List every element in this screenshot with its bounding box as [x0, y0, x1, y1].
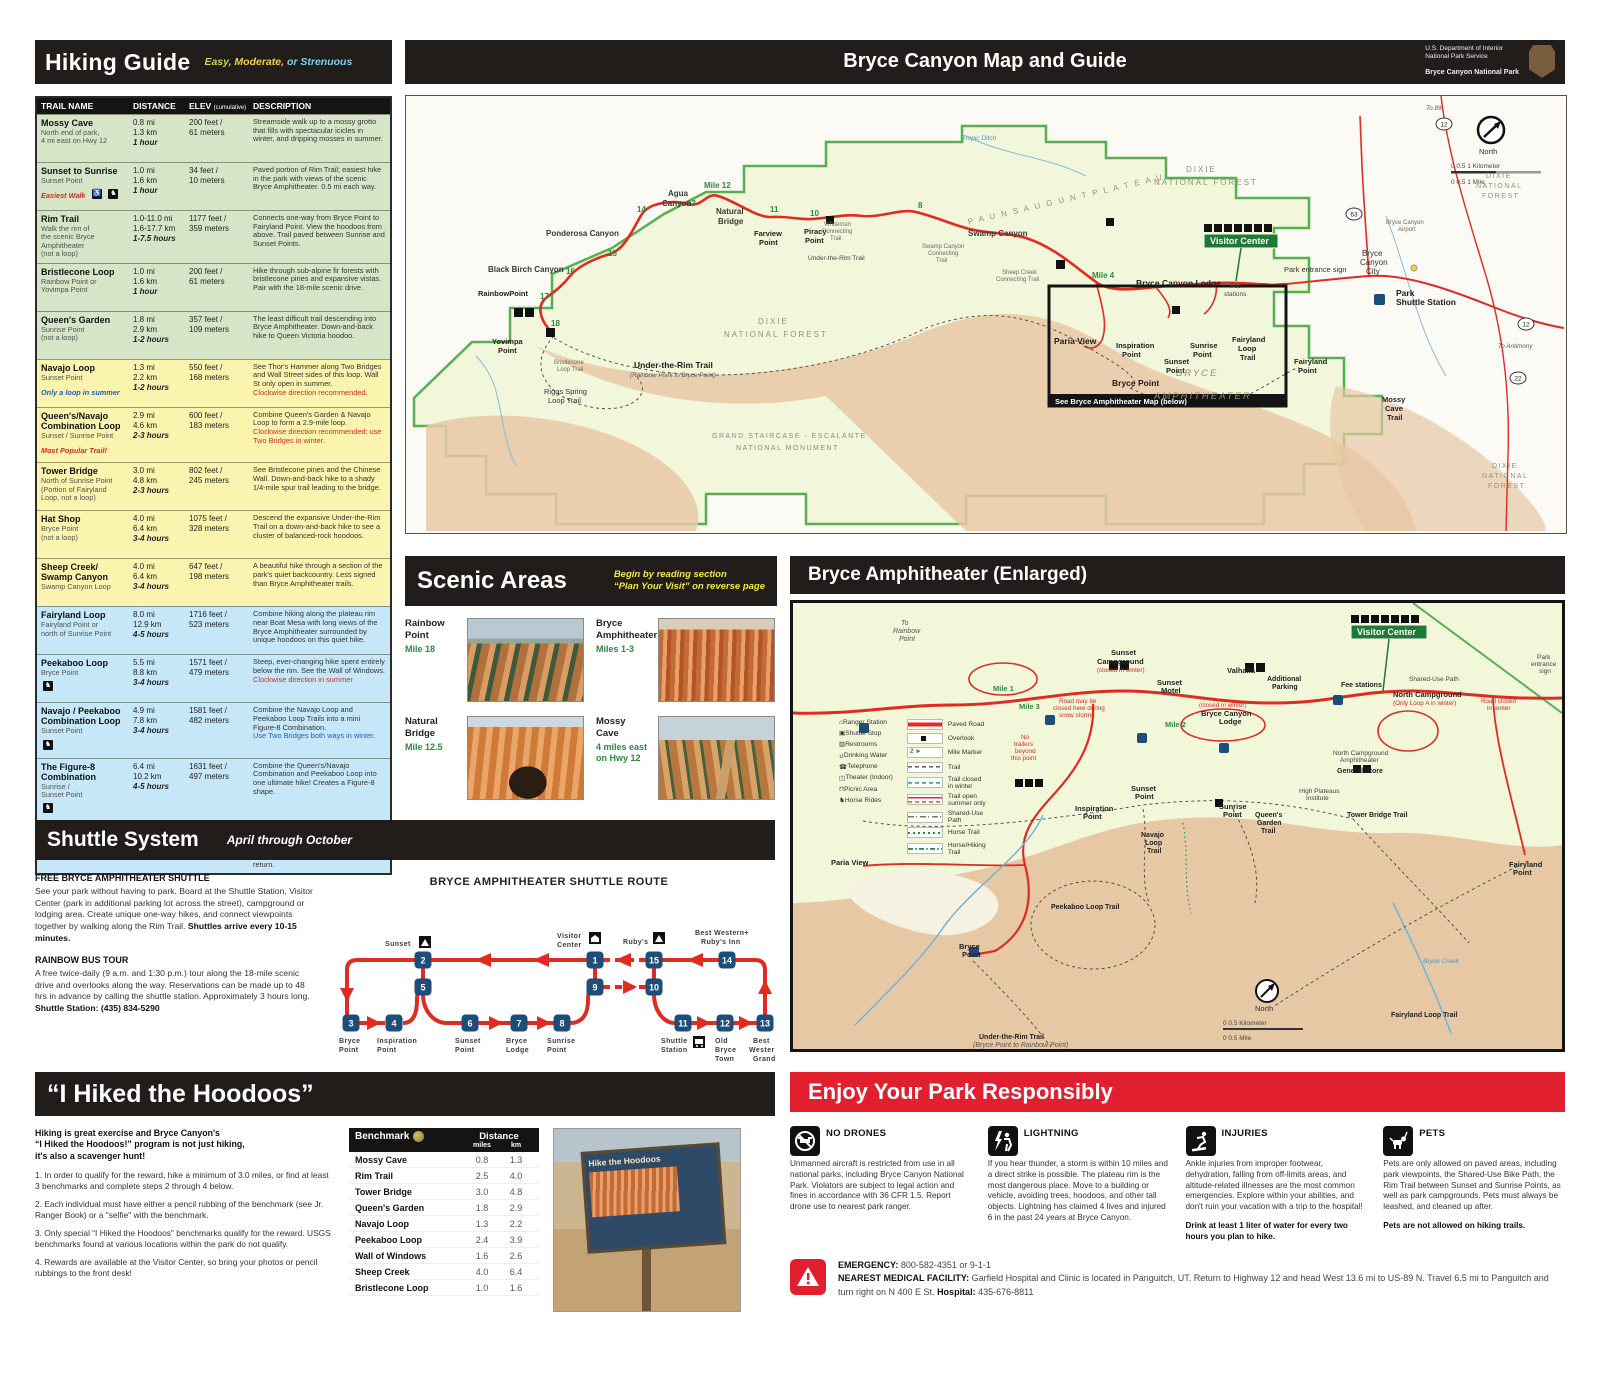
park-map-svg: See Bryce Amphitheater Map (below) Visit… — [406, 96, 1564, 531]
map-label: NATIONAL — [1476, 183, 1523, 190]
map-label: 18 — [551, 319, 560, 328]
svg-text:5: 5 — [420, 983, 425, 993]
map-label: DIXIE — [1186, 165, 1217, 174]
agency-block: U.S. Department of Interior National Par… — [1425, 45, 1519, 77]
svg-text:1: 1 — [592, 956, 597, 966]
trail-elevation: 200 feet /61 meters — [189, 118, 253, 158]
trail-distance: 4.9 mi7.8 km3-4 hours — [133, 706, 189, 754]
map-label: DIXIE — [1486, 173, 1512, 180]
benchmark-row: Rim Trail 2.5 4.0 — [349, 1168, 539, 1184]
svg-text:63: 63 — [1350, 212, 1358, 219]
hoodoos-step: 1. In order to qualify for the reward, h… — [35, 1170, 335, 1192]
benchmark-medallion-icon — [413, 1131, 424, 1142]
map-label: Trail — [1240, 353, 1255, 362]
route-lines — [347, 960, 765, 1023]
amph-label: Parking — [1272, 684, 1298, 691]
amph-label: Trail — [1147, 848, 1161, 855]
benchmark-row: Wall of Windows 1.6 2.6 — [349, 1248, 539, 1264]
trail-distance: 3.0 mi4.8 km2-3 hours — [133, 466, 189, 506]
amphitheater-header: Bryce Amphitheater (Enlarged) — [790, 556, 1565, 594]
shuttle-stop: 10 — [646, 979, 663, 996]
trail-name: Navajo / Peekaboo Combination Loop — [41, 706, 133, 726]
trail-distance: 2.9 mi4.6 km2-3 hours — [133, 411, 189, 459]
amph-label: To — [901, 620, 909, 627]
hoodoos-step: 3. Only special “I Hiked the Hoodoos" be… — [35, 1228, 335, 1250]
route-shield: 12 — [1518, 318, 1534, 330]
hiking-guide-title: Hiking Guide — [45, 49, 190, 76]
scenic-areas-header: Scenic Areas Begin by reading section“Pl… — [405, 556, 777, 606]
amph-label: in winter — [1487, 705, 1510, 712]
legend-line-symbols: Paved Road Overlook 2 ► Mile Marker Trai… — [907, 719, 986, 859]
rainbow-tour-heading: RAINBOW BUS TOUR — [35, 954, 315, 966]
route-shield: 63 — [1346, 208, 1362, 220]
map-label: Connecting Trail — [996, 277, 1039, 283]
stop-label: Station — [661, 1047, 688, 1054]
legend-item: ♞ Horse Rides — [839, 796, 893, 804]
map-label: Airport — [1398, 227, 1416, 233]
legend-line-sample — [907, 827, 943, 838]
hoodoos-text: Hiking is great exercise and Bryce Canyo… — [35, 1128, 335, 1312]
benchmark-row: Peekaboo Loop 2.4 3.9 — [349, 1232, 539, 1248]
map-label: Bristlecone — [554, 360, 584, 366]
amph-label: Queen's — [1255, 812, 1282, 819]
map-label: FOREST — [1482, 193, 1519, 200]
amph-label: Mile 1 — [993, 684, 1014, 693]
legend-item: ▣ Shuttle Stop — [839, 729, 893, 737]
trail-name: Sunset to Sunrise — [41, 166, 133, 176]
hiking-guide-header: Hiking Guide Easy, Moderate, or Strenuou… — [35, 40, 392, 84]
legend-line-sample — [907, 762, 943, 773]
map-label: Fairyland — [1294, 357, 1328, 366]
trail-elevation: 802 feet /245 meters — [189, 466, 253, 506]
table-row: Peekaboo Loop Bryce Point ♞ 5.5 mi8.8 km… — [37, 654, 390, 702]
accessible-icon: ♞ — [43, 740, 53, 750]
item-body: Pets are only allowed on paved areas, in… — [1383, 1159, 1565, 1213]
trail-table: TRAIL NAME DISTANCE ELEV (cumulative) DE… — [35, 96, 392, 875]
table-row: Tower Bridge North of Sunrise Point (Por… — [37, 462, 390, 510]
trail-name: Tower Bridge — [41, 466, 133, 476]
trail-description: Steep, ever-changing hike spent entirely… — [253, 658, 388, 698]
map-guide-title: Bryce Canyon Map and Guide — [405, 50, 1565, 73]
legend-item: Horse/Hiking Trail — [907, 842, 986, 856]
col-trail-name: TRAIL NAME — [41, 101, 133, 111]
trail-location: Sunset Point — [41, 727, 133, 735]
trail-distance: 5.5 mi8.8 km3-4 hours — [133, 658, 189, 698]
sign-text: Hike the Hoodoos — [588, 1150, 713, 1169]
table-row: Sheep Creek/ Swamp Canyon Swamp Canyon L… — [37, 558, 390, 606]
stop-label: Best — [753, 1038, 770, 1045]
map-label: Point — [1193, 350, 1212, 359]
trail-description: Combine the Queen's/Navajo Combination a… — [253, 762, 388, 818]
scenic-card-title: Natural Bridge — [405, 716, 467, 740]
route-svg: 2 5 1 9 15 10 — [323, 890, 775, 1068]
legend-line-sample — [907, 812, 943, 823]
amph-label: Navajo — [1141, 832, 1164, 839]
junction-dot — [1411, 265, 1417, 271]
map-label: Point — [1298, 366, 1317, 375]
pets-item: PETS Pets are only allowed on paved area… — [1383, 1126, 1565, 1243]
amph-label: Bryce Creek — [1423, 958, 1460, 965]
map-label: Park entrance sign — [1284, 265, 1347, 274]
map-label: Under-the-Rim Trail — [634, 360, 713, 370]
trail-note: Easiest Walk — [41, 191, 85, 200]
trail-description: Combine Queen's Garden & Navajo Loop to … — [253, 411, 388, 459]
legend-label: Overlook — [948, 735, 974, 742]
map-label: Swamp Canyon — [968, 229, 1028, 238]
scenic-card-title: Mossy Cave — [596, 716, 658, 740]
svg-text:0 0.5 Mile: 0 0.5 Mile — [1223, 1035, 1252, 1042]
map-label: Connecting — [822, 229, 852, 235]
legend-label: Horse Trail — [948, 829, 980, 836]
map-label: Shuttle Station — [1396, 297, 1456, 307]
map-label: Tropic Ditch — [962, 135, 997, 142]
shuttle-stop: 15 — [646, 952, 663, 969]
legend-line-sample — [907, 794, 943, 805]
free-shuttle-heading: FREE BRYCE AMPHITHEATER SHUTTLE — [35, 872, 315, 884]
svg-text:Visitor Center: Visitor Center — [1357, 627, 1416, 637]
table-row: Bristlecone Loop Rainbow Point or Yovimp… — [37, 263, 390, 311]
amph-label: Peekaboo Loop Trail — [1051, 904, 1120, 911]
map-label: 11 — [770, 205, 779, 214]
table-row: Fairyland Loop Fairyland Point or north … — [37, 606, 390, 654]
map-label: Under-the-Rim Trail — [808, 255, 865, 262]
map-label: Black Birch Canyon — [488, 265, 564, 274]
legend-item: 2 ► Mile Marker — [907, 747, 986, 758]
responsibly-panel: Enjoy Your Park Responsibly NO DRONES Un… — [790, 1072, 1565, 1299]
hoodoos-header: “I Hiked the Hoodoos” — [35, 1072, 775, 1116]
scenic-card: Rainbow Point Mile 18 — [405, 618, 586, 702]
map-label: BRYCE — [1176, 368, 1218, 379]
stop-label: Bryce — [339, 1038, 360, 1045]
scenic-card-title: Rainbow Point — [405, 618, 467, 642]
svg-text:North: North — [1255, 1004, 1273, 1013]
scenic-photo — [658, 618, 775, 702]
table-row: Sunset to Sunrise Sunset Point Easiest W… — [37, 162, 390, 210]
lightning-item: LIGHTNING If you hear thunder, a storm i… — [988, 1126, 1170, 1243]
legend-label: Paved Road — [948, 721, 984, 728]
benchmark-table: Benchmark Distance miles km Mossy Cave 0… — [349, 1128, 539, 1312]
legend-label: Ranger Station — [843, 719, 887, 726]
scenic-photo — [658, 716, 775, 800]
hoodoos-sign-photo: Hike the Hoodoos — [553, 1128, 741, 1312]
trail-name: Mossy Cave — [41, 118, 133, 128]
emergency-text: EMERGENCY: 800-582-4351 or 9-1-1 NEAREST… — [838, 1259, 1565, 1300]
stop-label: Lodge — [506, 1047, 529, 1054]
trail-elevation: 200 feet /61 meters — [189, 267, 253, 307]
trail-distance: 6.4 mi10.2 km4-5 hours — [133, 762, 189, 818]
amph-label: Tower Bridge Trail — [1347, 812, 1408, 819]
map-label: Canyon — [662, 199, 691, 208]
map-label: AMPHITHEATER — [1153, 391, 1252, 402]
map-label: To 89 — [1426, 105, 1442, 112]
map-label: Loop Trail — [548, 396, 581, 405]
stop-label: Inspiration — [377, 1038, 417, 1045]
amph-label: North Campground — [1333, 750, 1389, 757]
map-label: Loop — [1238, 344, 1257, 353]
route-shield: 12 — [1436, 118, 1452, 130]
svg-text:8: 8 — [559, 1019, 564, 1029]
map-label: 16 — [566, 267, 575, 276]
amph-label: Road closed — [1481, 698, 1517, 705]
shuttle-stop: 6 — [462, 1015, 479, 1032]
shuttle-route-diagram: BRYCE AMPHITHEATER SHUTTLE ROUTE — [315, 872, 775, 1073]
map-label: City — [1366, 267, 1380, 276]
scenic-card-mile: Mile 18 — [405, 644, 467, 655]
legend-item: ◫ Theater (Indoor) — [839, 774, 893, 782]
map-label: Trail — [830, 236, 841, 242]
svg-text:11: 11 — [678, 1019, 688, 1029]
map-label: stations — [1224, 291, 1247, 298]
amph-label: Park — [1537, 654, 1551, 661]
legend-label: Theater (Indoor) — [845, 774, 893, 781]
trail-distance: 1.0 mi1.6 km1 hour — [133, 166, 189, 206]
map-label: NATIONAL — [1482, 473, 1529, 480]
legend-label: Horse/Hiking Trail — [948, 842, 986, 856]
trail-distance: 8.0 mi12.9 km4-5 hours — [133, 610, 189, 650]
amph-label: Valhalla — [1227, 666, 1256, 675]
map-guide-header: Bryce Canyon Map and Guide U.S. Departme… — [405, 40, 1565, 84]
shuttle-season: April through October — [227, 833, 352, 847]
trail-location: Fairyland Point or north of Sunrise Poin… — [41, 621, 133, 638]
trail-name: Bristlecone Loop — [41, 267, 133, 277]
item-title: PETS — [1419, 1128, 1445, 1156]
benchmark-header: Benchmark Distance miles km — [349, 1128, 539, 1152]
map-label: Mossy — [1382, 395, 1406, 404]
sign-board: Hike the Hoodoos — [581, 1142, 727, 1253]
responsibly-title: Enjoy Your Park Responsibly — [808, 1079, 1113, 1105]
shuttle-stop: 14 — [719, 952, 736, 969]
stop-label: Point — [455, 1047, 475, 1054]
map-label: Mile 12 — [704, 181, 731, 190]
map-label: Paria View — [1054, 336, 1097, 346]
trail-description: The least difficult trail descending int… — [253, 315, 388, 355]
accessible-icon: ♿ — [92, 189, 102, 199]
legend-item: Paved Road — [907, 719, 986, 730]
legend-label: Horse Rides — [845, 797, 881, 804]
trail-elevation: 1177 feet /359 meters — [189, 214, 253, 259]
map-label: DIXIE — [1492, 463, 1518, 470]
amph-label: Paria View — [831, 858, 869, 867]
route-shield: 22 — [1510, 372, 1526, 384]
shuttle-stop: 13 — [757, 1015, 774, 1032]
trail-location: Sunrise / Sunset Point — [41, 783, 133, 800]
map-label: Connecting — [928, 251, 958, 257]
responsibly-header: Enjoy Your Park Responsibly — [790, 1072, 1565, 1112]
trail-location: Swamp Canyon Loop — [41, 583, 133, 591]
trail-description: Paved portion of Rim Trail; easiest hike… — [253, 166, 388, 206]
no-drones-icon — [790, 1126, 820, 1156]
legend-line-sample — [907, 733, 943, 744]
trail-note: Most Popular Trail! — [41, 446, 107, 455]
table-row: The Figure-8 Combination Sunrise / Sunse… — [37, 758, 390, 822]
legend-point-symbols: ⌂ Ranger Station ▣ Shuttle Stop ▥ Restro… — [839, 719, 893, 859]
table-row: Queen's/Navajo Combination Loop Sunset /… — [37, 407, 390, 463]
svg-text:Visitor Center: Visitor Center — [1210, 236, 1269, 246]
amph-label: Loop — [1145, 840, 1162, 847]
injuries-icon — [1186, 1126, 1216, 1156]
map-label: Natural — [716, 207, 744, 216]
legend-label: Mile Marker — [948, 749, 982, 756]
table-row: Rim Trail Walk the rim of the scenic Bry… — [37, 210, 390, 263]
trail-distance: 1.3 mi2.2 km1-2 hours — [133, 363, 189, 403]
trail-distance: 1.0-11.0 mi1.6-17.7 km1-7.5 hours — [133, 214, 189, 259]
map-label: Bridge — [718, 217, 744, 226]
item-title: LIGHTNING — [1024, 1128, 1079, 1156]
stop-label: Town — [715, 1056, 734, 1063]
hoodoos-steps: 1. In order to qualify for the reward, h… — [35, 1170, 335, 1278]
shuttle-stop: 1 — [587, 952, 604, 969]
map-label: Ponderosa Canyon — [546, 229, 619, 238]
amph-label: (Bryce Point to Rainbow Point) — [973, 1042, 1068, 1049]
amph-label: sign — [1539, 668, 1551, 675]
map-label: Point — [759, 238, 778, 247]
legend-item: ⊓ Picnic Area — [839, 785, 893, 793]
amph-label: High Plateaus — [1299, 788, 1340, 795]
amph-label: General Store — [1337, 768, 1383, 775]
map-label: Point — [498, 346, 517, 355]
amph-label: (closed in winter) — [1199, 702, 1247, 709]
shuttle-stop: 9 — [587, 979, 604, 996]
stop-label: Shuttle — [661, 1038, 688, 1045]
stop-label: Sunrise — [547, 1038, 575, 1045]
trail-description: See Thor's Hammer along Two Bridges and … — [253, 363, 388, 403]
map-label: Bryce Point — [1112, 378, 1159, 388]
benchmark-rows: Mossy Cave 0.8 1.3 Rim Trail 2.5 4.0 Tow… — [349, 1152, 539, 1296]
trail-distance: 0.8 mi1.3 km1 hour — [133, 118, 189, 158]
col-description: DESCRIPTION — [253, 101, 390, 111]
trail-elevation: 34 feet /10 meters — [189, 166, 253, 206]
trail-elevation: 1571 feet /479 meters — [189, 658, 253, 698]
benchmark-row: Navajo Loop 1.3 2.2 — [349, 1216, 539, 1232]
legend-item: ∪ Drinking Water — [839, 752, 893, 760]
amph-label: Rainbow — [893, 628, 921, 635]
legend-label: Picnic Area — [844, 786, 877, 793]
map-label: Whiteman — [824, 222, 851, 228]
map-label: NATIONAL MONUMENT — [736, 445, 839, 452]
legend-label: Shuttle Stop — [845, 730, 881, 737]
shuttle-stop: 4 — [386, 1015, 403, 1032]
stop-label: Point — [547, 1047, 567, 1054]
map-label: Fee — [1230, 283, 1242, 290]
amph-label: Campground — [1097, 657, 1144, 666]
svg-text:7: 7 — [516, 1019, 521, 1029]
amph-label: Sunset — [1111, 648, 1137, 657]
trail-location: Bryce Point (not a loop) — [41, 525, 133, 542]
amph-label: Fairyland Loop Trail — [1391, 1012, 1458, 1019]
scenic-cards: Rainbow Point Mile 18 Bryce Amphitheater… — [405, 618, 777, 800]
map-label: (Rainbow Point to Bryce Point) — [630, 372, 716, 379]
item-title: INJURIES — [1222, 1128, 1268, 1156]
amph-label: closed here during — [1053, 705, 1105, 712]
legend-label: Trail open summer only — [948, 793, 986, 807]
trail-location: North end of park, 4 mi east on Hwy 12 — [41, 129, 133, 146]
legend-item: Trail closed in winter — [907, 776, 986, 790]
map-legend: ⌂ Ranger Station ▣ Shuttle Stop ▥ Restro… — [839, 719, 1024, 859]
trail-name: Queen's Garden — [41, 315, 133, 325]
map-label: Sunset — [1164, 357, 1190, 366]
map-label: Bryce — [1362, 249, 1383, 258]
legend-line-sample — [907, 719, 943, 730]
map-label: Mile 4 — [1092, 271, 1115, 280]
svg-text:North: North — [1479, 147, 1497, 156]
amph-label: entrance — [1531, 661, 1557, 668]
trail-name: Hat Shop — [41, 514, 133, 524]
emergency-block: EMERGENCY: 800-582-4351 or 9-1-1 NEAREST… — [790, 1259, 1565, 1300]
trail-location: North of Sunrise Point (Portion of Fairy… — [41, 477, 133, 502]
horse-icon: ♞ — [108, 189, 118, 199]
item-body: Unmanned aircraft is restricted from use… — [790, 1159, 972, 1213]
trail-description: A beautiful hike through a section of th… — [253, 562, 388, 602]
map-label: FOREST — [1488, 483, 1525, 490]
amph-label: Under-the-Rim Trail — [979, 1034, 1044, 1041]
legend-label: Telephone — [847, 763, 877, 770]
amph-label: Fee stations — [1341, 682, 1382, 689]
map-label: Sheep Creek — [1002, 270, 1038, 276]
trail-location: Sunrise Point (not a loop) — [41, 326, 133, 343]
scenic-areas-note: Begin by reading section“Plan Your Visit… — [614, 569, 765, 593]
shuttle-stop: 2 — [415, 952, 432, 969]
trail-description: See Bristlecone pines and the Chinese Wa… — [253, 466, 388, 506]
svg-text:10: 10 — [649, 983, 659, 993]
svg-text:6: 6 — [467, 1019, 472, 1029]
warning-icon — [790, 1259, 826, 1295]
scenic-card-title: Bryce Amphitheater — [596, 618, 658, 642]
amph-label: Point — [1223, 810, 1242, 819]
amph-label: Mile 3 — [1019, 702, 1040, 711]
amph-label: (closed in winter) — [1097, 667, 1145, 674]
lightning-icon — [988, 1126, 1018, 1156]
stop-label: Old — [715, 1038, 728, 1045]
trail-distance: 4.0 mi6.4 km3-4 hours — [133, 562, 189, 602]
legend-item: Trail — [907, 762, 986, 773]
shuttle-stop: 3 — [343, 1015, 360, 1032]
map-label: Trail — [1387, 413, 1402, 422]
trail-table-header: TRAIL NAME DISTANCE ELEV (cumulative) DE… — [37, 98, 390, 114]
amph-label: Trail — [1261, 828, 1275, 835]
stop-label: Bryce — [506, 1038, 527, 1045]
trail-description: Descend the expansive Under-the-Rim Trai… — [253, 514, 388, 554]
amph-label: Point — [899, 636, 916, 643]
map-label: 17 — [540, 292, 549, 301]
trail-description: Combine the Navajo Loop and Peekaboo Loo… — [253, 706, 388, 754]
map-label: Yovimpa — [492, 337, 524, 346]
map-label: Fairyland — [1232, 335, 1266, 344]
stop-label: Center — [557, 942, 582, 949]
legend-item: Horse Trail — [907, 827, 986, 838]
legend-label: Trail — [948, 764, 961, 771]
amph-label: North Campground — [1393, 690, 1462, 699]
map-label: Swamp Canyon — [922, 244, 964, 250]
trail-location: Sunset Point — [41, 177, 133, 185]
trail-location: Sunset Point — [41, 374, 133, 382]
svg-text:15: 15 — [649, 956, 659, 966]
trail-distance: 1.0 mi1.6 km1 hour — [133, 267, 189, 307]
legend-line-sample — [907, 777, 943, 788]
map-label: NATIONAL FOREST — [724, 330, 828, 339]
scenic-card: Natural Bridge Mile 12.5 — [405, 716, 586, 800]
stop-label: Point — [377, 1047, 397, 1054]
trail-name: The Figure-8 Combination — [41, 762, 133, 782]
shuttle-system-panel: Shuttle System April through October FRE… — [35, 820, 775, 1073]
amph-label: Point — [1513, 868, 1532, 877]
map-label: 15 — [608, 249, 617, 258]
map-label: 10 — [810, 209, 819, 218]
map-label: Point — [1122, 350, 1141, 359]
amph-label: Mile 2 — [1165, 720, 1186, 729]
trail-elevation: 1581 feet /482 meters — [189, 706, 253, 754]
map-label: Cave — [1385, 404, 1403, 413]
legend-item: Trail open summer only — [907, 793, 986, 807]
